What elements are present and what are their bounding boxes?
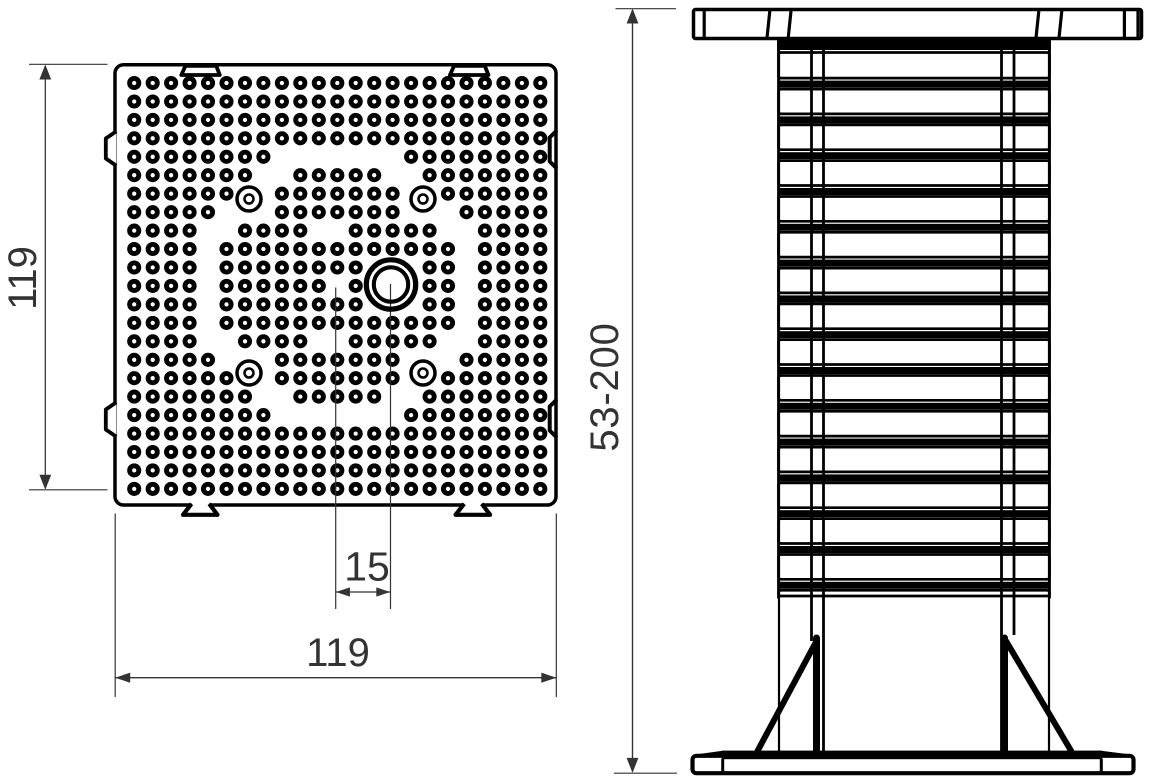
svg-text:119: 119 (306, 631, 370, 675)
svg-text:119: 119 (1, 246, 45, 310)
svg-text:53-200: 53-200 (583, 322, 627, 451)
svg-text:15: 15 (344, 544, 390, 590)
